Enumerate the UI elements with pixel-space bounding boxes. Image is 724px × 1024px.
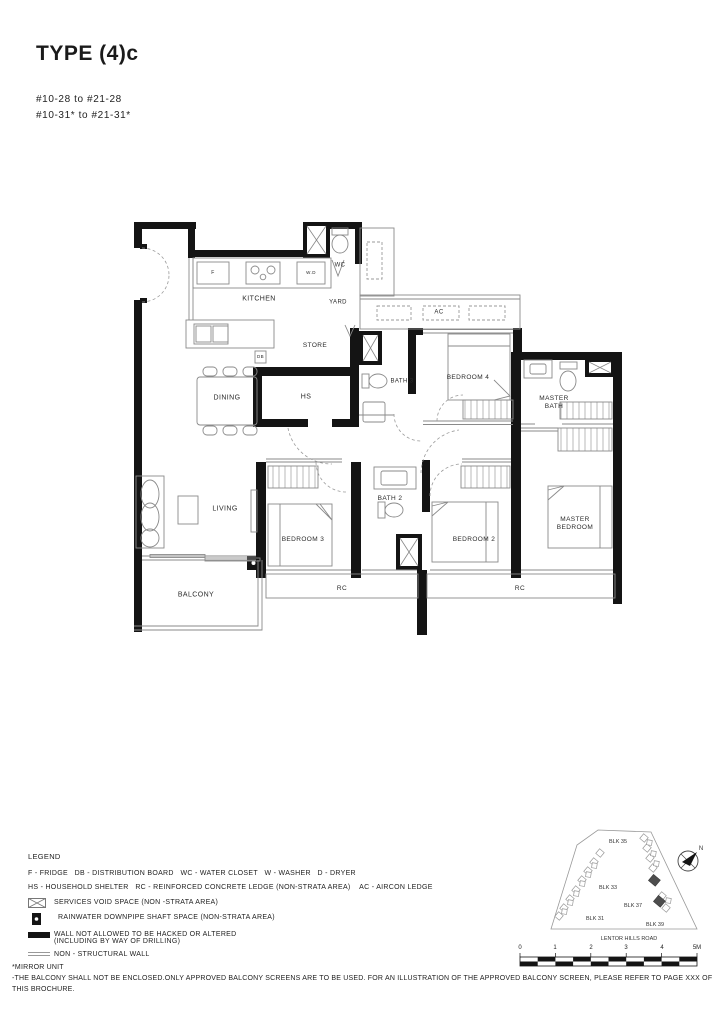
services-void-bath2-icon bbox=[396, 534, 422, 570]
site-label-blk39: BLK 39 bbox=[646, 922, 664, 928]
bifold-doors bbox=[332, 260, 355, 336]
site-label-road: LENTOR HILLS ROAD bbox=[601, 936, 657, 942]
room-label-balcony: BALCONY bbox=[178, 592, 214, 601]
scale-2: 2 bbox=[589, 945, 592, 951]
services-void-mid-icon bbox=[359, 331, 382, 365]
legend-services-void-text: SERVICES VOID SPACE (NON -STRATA AREA) bbox=[54, 898, 218, 906]
legend-row-rainwater: RAINWATER DOWNPIPE SHAFT SPACE (NON-STRA… bbox=[28, 913, 433, 925]
scale-3: 3 bbox=[624, 945, 627, 951]
site-label-blk37: BLK 37 bbox=[624, 903, 642, 909]
room-label-bedroom3: BEDROOM 3 bbox=[282, 536, 325, 544]
site-label-blk31: BLK 31 bbox=[586, 916, 604, 922]
wardrobes bbox=[268, 400, 612, 488]
legend-non-structural-text: NON - STRUCTURAL WALL bbox=[54, 950, 150, 958]
room-label-bedroom2: BEDROOM 2 bbox=[453, 536, 496, 544]
floorplan-page: { "header": { "title": "TYPE (4)c", "uni… bbox=[0, 0, 724, 1024]
room-label-yard: YARD bbox=[329, 299, 347, 307]
washer-dryer-label: W.D bbox=[306, 270, 316, 276]
scale-1: 1 bbox=[553, 945, 556, 951]
room-label-bath2: BATH 2 bbox=[378, 495, 403, 503]
footnotes: *MIRROR UNIT -THE BALCONY SHALL NOT BE E… bbox=[12, 962, 724, 996]
legend-row-services-void: SERVICES VOID SPACE (NON -STRATA AREA) bbox=[28, 898, 433, 908]
non-structural-legend-icon bbox=[28, 950, 54, 958]
scale-4: 4 bbox=[660, 945, 663, 951]
wall-legend-icon bbox=[28, 930, 54, 940]
room-label-hs: HS bbox=[301, 394, 312, 403]
room-label-living: LIVING bbox=[212, 506, 237, 515]
mirror-unit-note: *MIRROR UNIT bbox=[12, 962, 724, 973]
room-label-master-bedroom: MASTER BEDROOM bbox=[552, 516, 598, 532]
legend-row-wall: WALL NOT ALLOWED TO BE HACKED OR ALTERED… bbox=[28, 930, 433, 945]
room-label-master-bath: MASTER BATH bbox=[531, 395, 577, 411]
legend-row-non-structural: NON - STRUCTURAL WALL bbox=[28, 950, 433, 958]
room-label-wc: WC bbox=[335, 262, 346, 270]
site-label-blk33: BLK 33 bbox=[599, 885, 617, 891]
services-void-legend-icon bbox=[28, 898, 54, 908]
balcony-note: -THE BALCONY SHALL NOT BE ENCLOSED.ONLY … bbox=[12, 973, 724, 995]
highlighted-units bbox=[648, 874, 665, 907]
room-label-kitchen: KITCHEN bbox=[242, 296, 276, 305]
legend: LEGEND F - FRIDGE DB - DISTRIBUTION BOAR… bbox=[28, 852, 433, 963]
legend-abbreviations-2: HS - HOUSEHOLD SHELTER RC - REINFORCED C… bbox=[28, 884, 433, 891]
room-label-store: STORE bbox=[303, 342, 327, 350]
legend-wall-text: WALL NOT ALLOWED TO BE HACKED OR ALTERED… bbox=[54, 930, 237, 945]
site-label-blk35: BLK 35 bbox=[609, 839, 627, 845]
scale-0: 0 bbox=[518, 945, 521, 951]
north-label: N bbox=[699, 846, 703, 852]
services-void-masterbath-icon bbox=[585, 358, 615, 377]
north-compass-icon bbox=[678, 851, 698, 871]
rc-label-right: RC bbox=[515, 585, 525, 593]
rainwater-legend-icon bbox=[28, 913, 58, 925]
distribution-board-label: DB bbox=[257, 354, 264, 360]
room-label-bedroom4: BEDROOM 4 bbox=[447, 374, 490, 382]
rc-label-left: RC bbox=[337, 585, 347, 593]
legend-wall-line-1: WALL NOT ALLOWED TO BE HACKED OR ALTERED bbox=[54, 931, 237, 938]
fridge-label: F bbox=[211, 270, 214, 276]
legend-heading: LEGEND bbox=[28, 852, 433, 861]
aircon-label: AC bbox=[434, 309, 443, 317]
legend-wall-line-2: (INCLUDING BY WAY OF DRILLING) bbox=[54, 938, 237, 945]
legend-rainwater-text: RAINWATER DOWNPIPE SHAFT SPACE (NON-STRA… bbox=[58, 913, 275, 921]
room-label-bath3: BATH 3 bbox=[391, 378, 414, 386]
services-void-kitchen-icon bbox=[303, 222, 330, 258]
room-label-dining: DINING bbox=[214, 395, 241, 404]
scale-5m: 5M bbox=[693, 945, 701, 951]
legend-abbreviations-1: F - FRIDGE DB - DISTRIBUTION BOARD WC - … bbox=[28, 870, 433, 877]
